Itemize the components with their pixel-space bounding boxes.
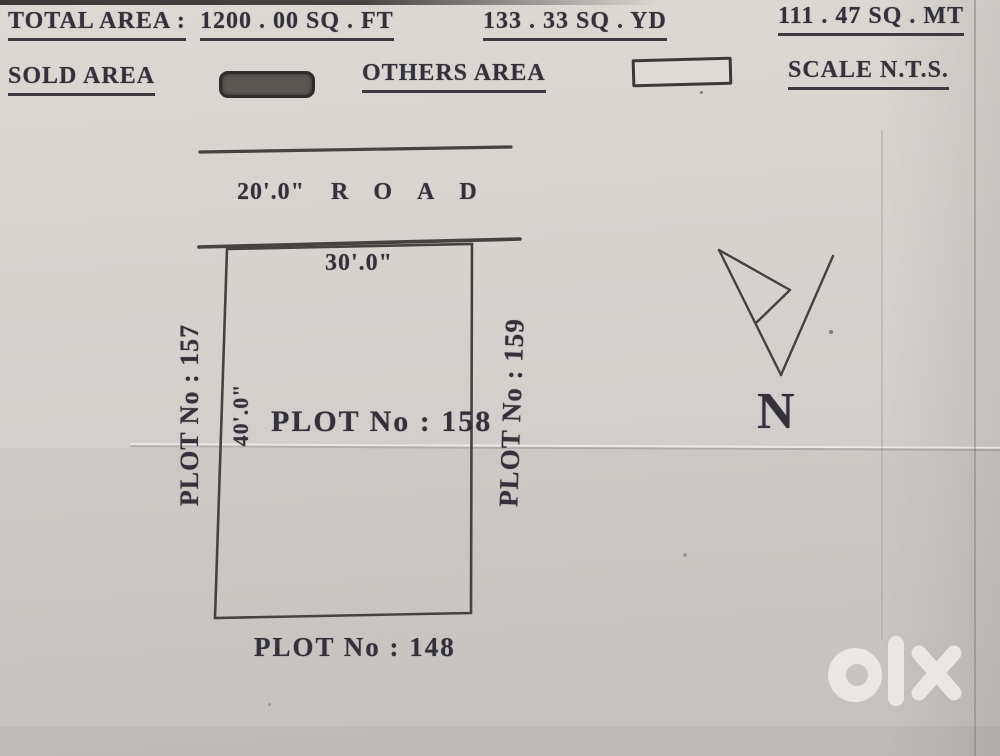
north-arrow-inner-cross — [757, 290, 790, 322]
olx-watermark — [815, 628, 975, 728]
plot-depth-dimension: 40'.0" — [228, 370, 254, 460]
plot-158-label: PLOT No : 158 — [271, 405, 492, 439]
plot-148-label: PLOT No : 148 — [254, 632, 456, 663]
olx-letter-x — [919, 653, 954, 693]
olx-bar — [888, 636, 904, 706]
scanned-site-plan: TOTAL AREA : 1200 . 00 SQ . FT 133 . 33 … — [0, 0, 1000, 756]
north-arrow — [719, 250, 833, 375]
road-name: ROAD — [331, 179, 502, 206]
north-label: N — [757, 382, 796, 441]
road-upper-line — [200, 147, 511, 152]
plot-157-label: PLOT No : 157 — [175, 320, 205, 510]
north-arrow-right-edge — [781, 256, 833, 375]
road-width-dimension: 20'.0" — [237, 179, 305, 206]
plot-frontage-dimension: 30'.0" — [325, 250, 393, 277]
olx-letter-o — [828, 648, 882, 702]
